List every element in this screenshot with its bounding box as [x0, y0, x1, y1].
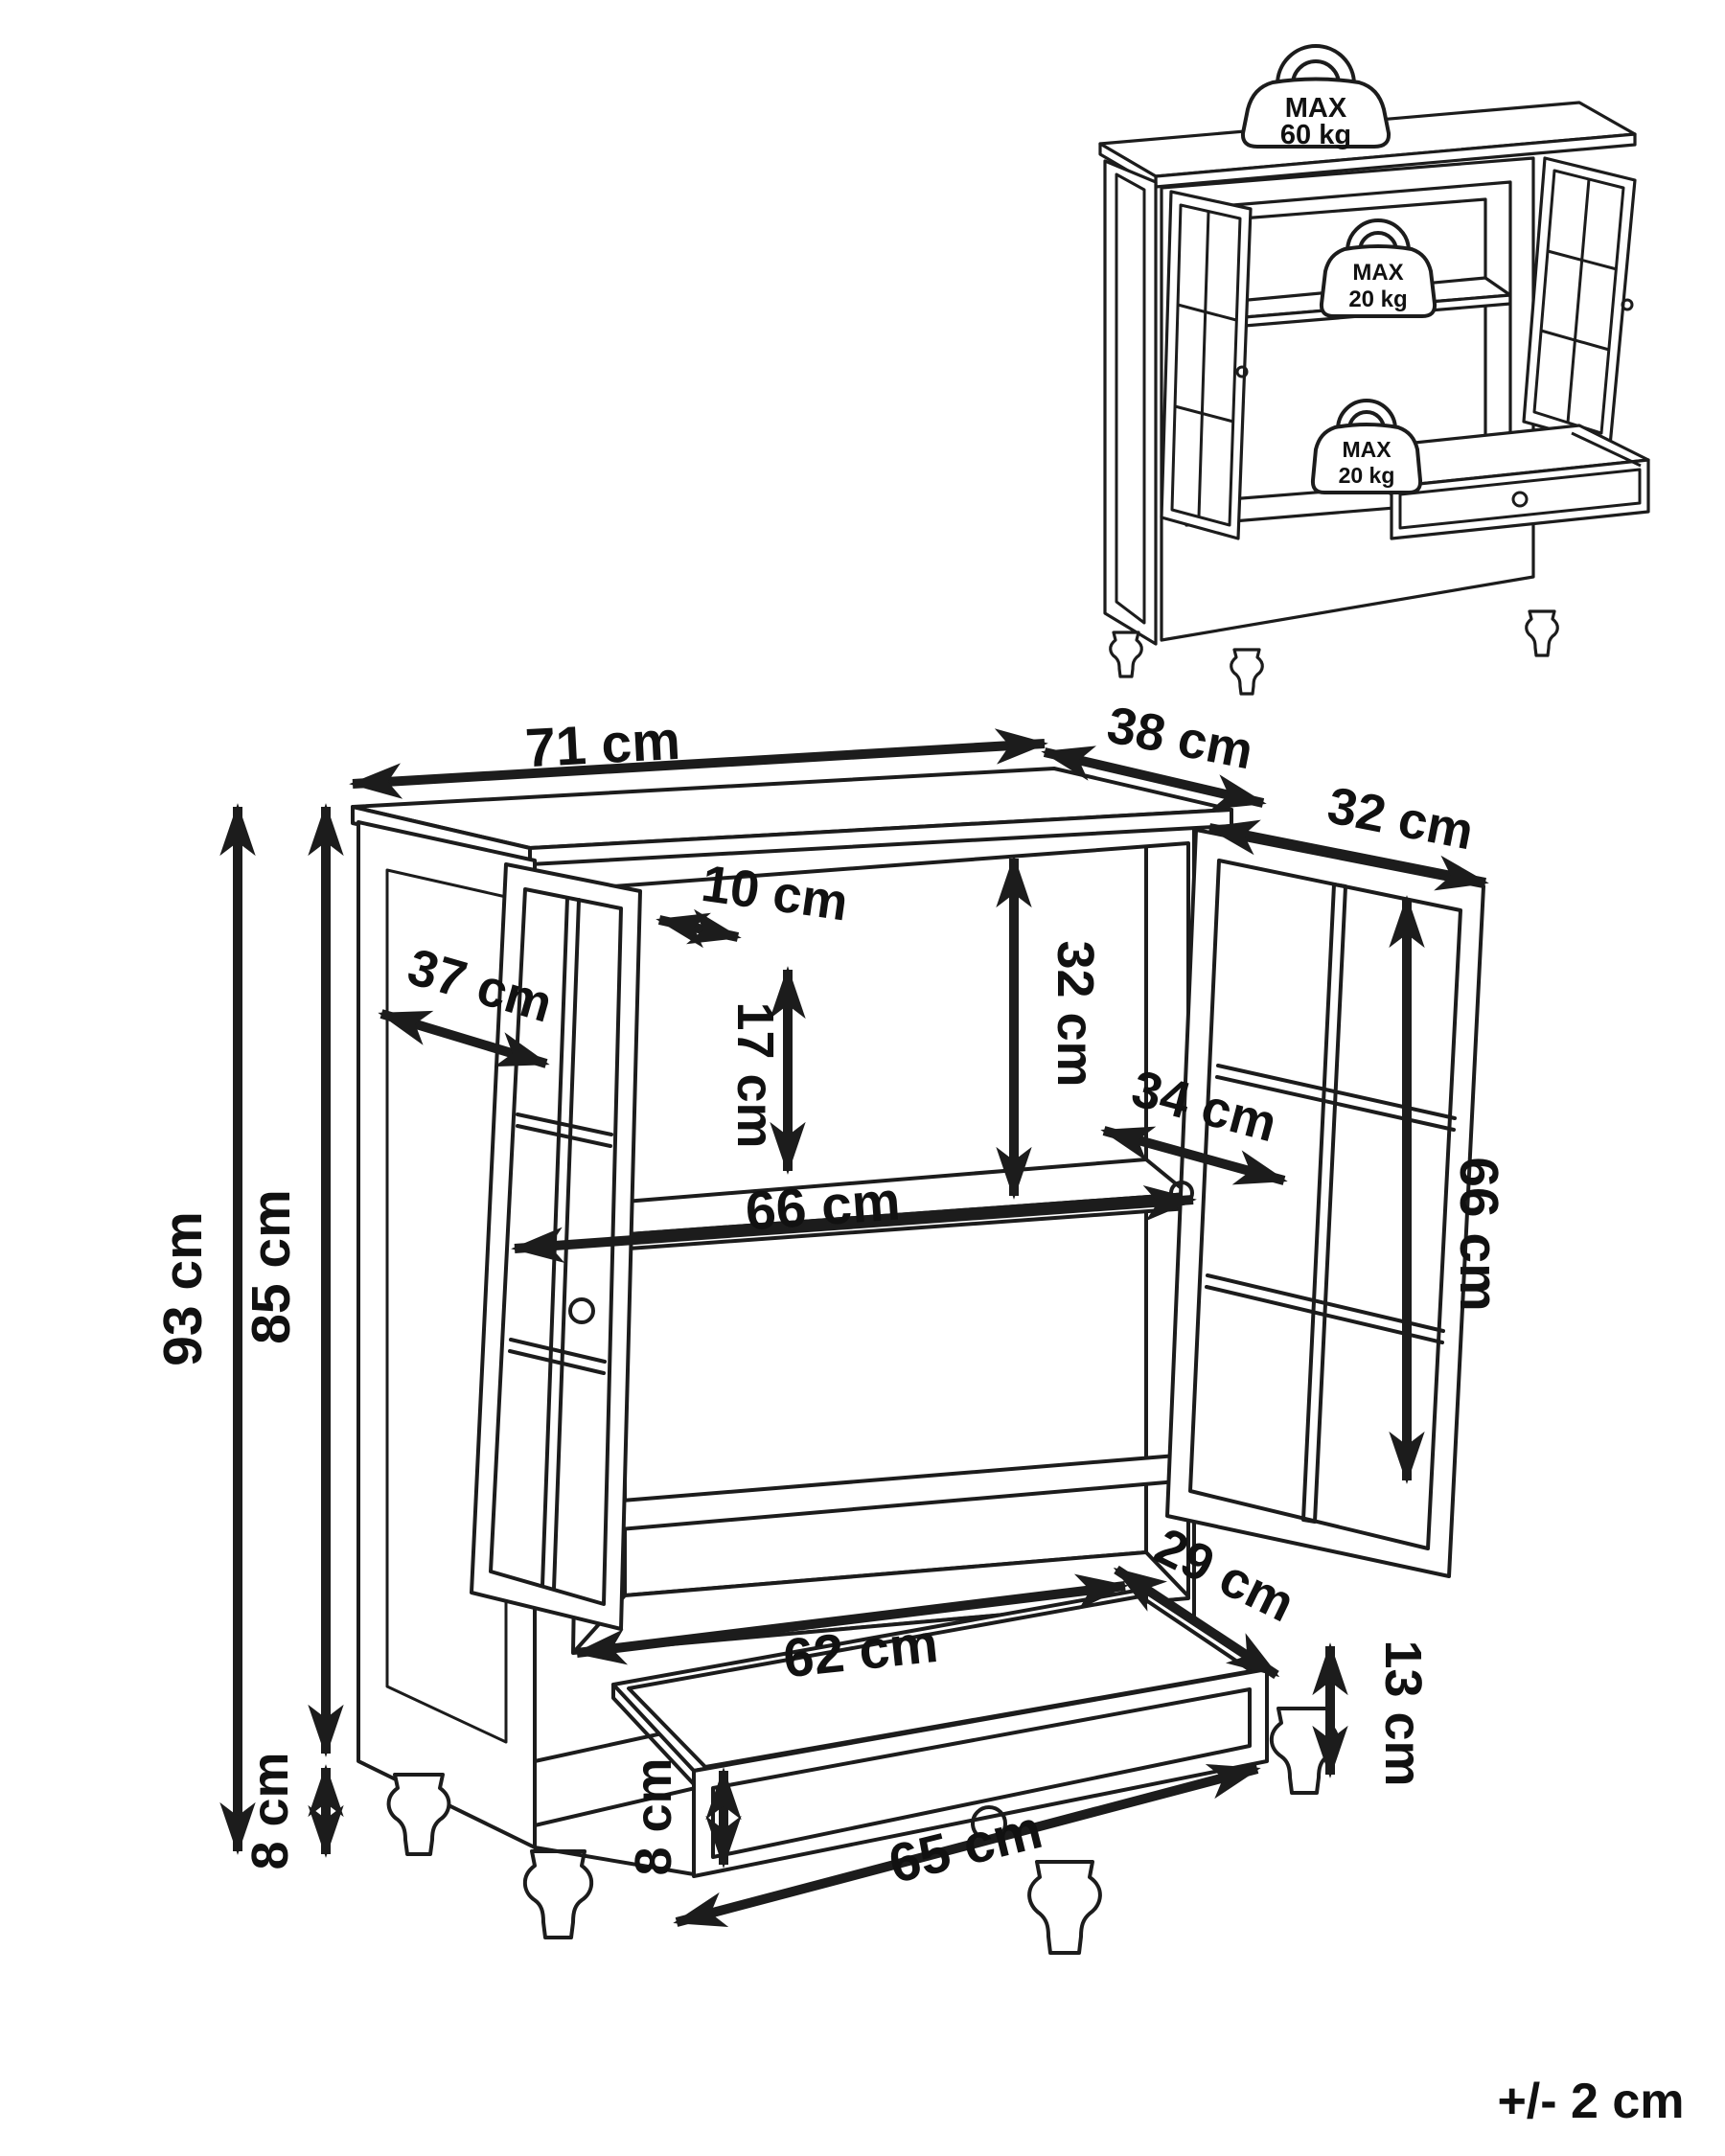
tolerance-note: +/- 2 cm — [1497, 2074, 1684, 2129]
dim-drawer-front-height-label: 8 cm — [625, 1757, 682, 1875]
inset-door-knob — [1622, 300, 1632, 310]
weight-icon-60kg: MAX 60 kg — [1243, 46, 1389, 150]
dim-total-height: 93 cm — [152, 807, 238, 1851]
dim-drawer-side-height-label: 13 cm — [1374, 1640, 1432, 1786]
inset-leg — [1527, 611, 1558, 655]
dim-total-height-label: 93 cm — [152, 1211, 214, 1366]
weight-value-label: 20 kg — [1339, 463, 1395, 488]
weight-max-label: MAX — [1342, 437, 1391, 462]
inset-leg — [1231, 650, 1263, 694]
dim-top-width-label: 71 cm — [524, 710, 682, 779]
leg-front-right — [1029, 1862, 1100, 1953]
inset-left-side-panel — [1105, 161, 1156, 644]
dim-leg-height-label: 8 cm — [241, 1752, 299, 1869]
weight-value-label: 60 kg — [1280, 120, 1351, 150]
inset-leg — [1111, 632, 1142, 677]
dim-drawer-side-height: 13 cm — [1330, 1640, 1432, 1786]
weight-value-label: 20 kg — [1348, 287, 1407, 312]
inset-left-door — [1161, 192, 1251, 539]
dim-above-shelf-height-label: 32 cm — [1046, 940, 1104, 1087]
main-cabinet-drawing: 71 cm 38 cm 32 cm 10 cm 17 cm — [152, 696, 1509, 1953]
right-door — [1167, 830, 1483, 1576]
dim-pane-height-label: 17 cm — [726, 1001, 784, 1148]
weight-max-label: MAX — [1352, 260, 1403, 286]
inset-drawing: MAX 60 kg MAX 20 kg MAX 20 kg — [1100, 46, 1648, 694]
dim-body-height-label: 85 cm — [241, 1189, 302, 1344]
leg-front-left — [525, 1851, 591, 1938]
dim-top-width: 71 cm — [353, 710, 1045, 784]
dim-interior-width-label: 66 cm — [744, 1170, 903, 1242]
leg-back-left — [389, 1775, 449, 1854]
inset-right-door — [1524, 158, 1635, 446]
diagram-canvas: MAX 60 kg MAX 20 kg MAX 20 kg — [0, 0, 1725, 2156]
dim-leg-height: 8 cm — [241, 1752, 326, 1869]
dim-right-door-width-label: 32 cm — [1323, 776, 1479, 860]
dim-body-height: 85 cm — [241, 807, 326, 1754]
dim-right-door-height-label: 66 cm — [1448, 1157, 1509, 1312]
diagram-page: MAX 60 kg MAX 20 kg MAX 20 kg — [0, 0, 1725, 2156]
